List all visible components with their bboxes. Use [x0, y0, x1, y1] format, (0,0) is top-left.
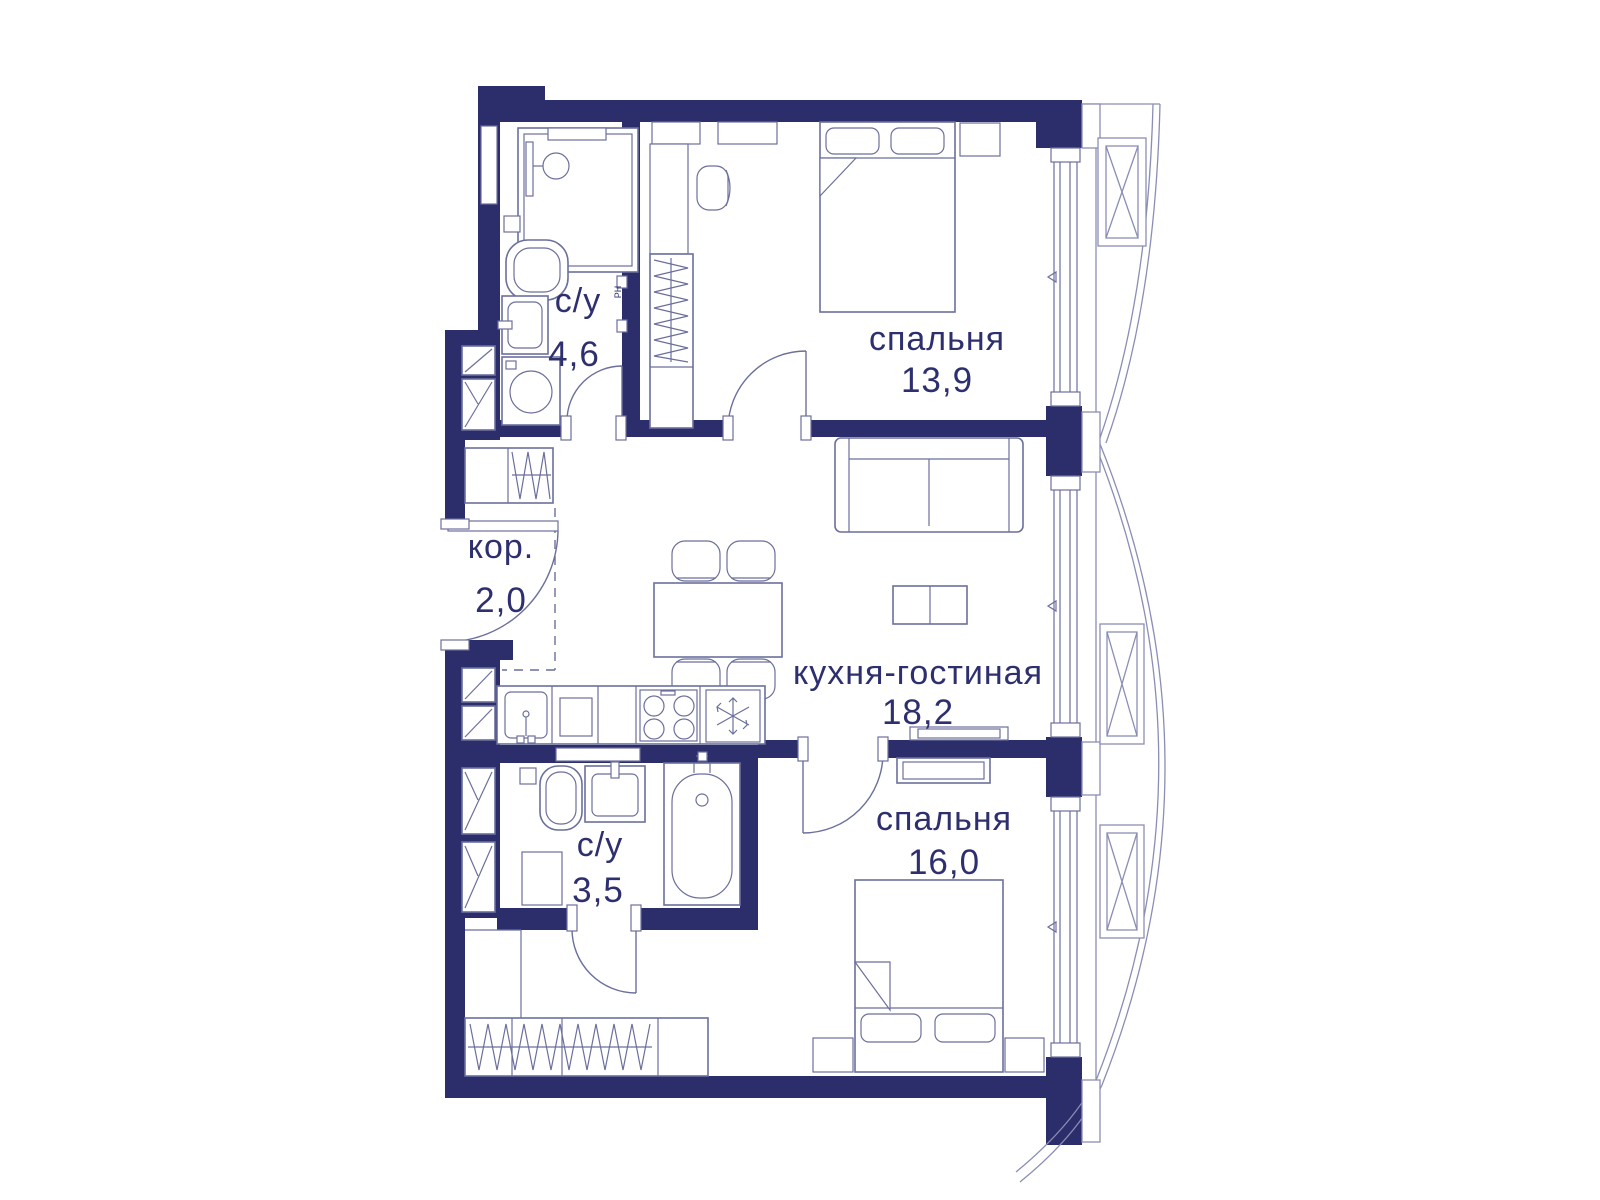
vent-shaft-icon — [462, 346, 495, 430]
window-icon — [1048, 797, 1080, 1057]
bathtub-icon — [664, 752, 740, 905]
wall-bottom — [445, 1076, 1082, 1098]
window-icon — [1048, 476, 1080, 737]
wall-niche — [481, 126, 497, 204]
wall-bathroom2-bottom-right — [636, 908, 758, 930]
facade-curve — [1100, 444, 1165, 1085]
door-bathroom-1 — [561, 366, 626, 440]
cabinet-icon — [560, 698, 592, 736]
nightstand-icon — [960, 123, 1000, 156]
door-bathroom-2 — [567, 905, 641, 993]
wall-top — [478, 100, 1082, 122]
shelf-icon — [652, 122, 700, 144]
wall-right-pier-b — [1046, 737, 1082, 797]
room-label-bedroom-1: спальня — [869, 320, 1005, 358]
wall-living-bedroom2-right — [883, 740, 1046, 758]
room-bathroom-2 — [520, 752, 740, 905]
nightstand-icon — [813, 1038, 853, 1072]
facade-pier-box — [1082, 742, 1100, 795]
chair-icon — [697, 166, 730, 210]
wall-bedroom1-bottom-right — [806, 420, 1046, 437]
room-label-kitchen-living: кухня-гостиная — [793, 654, 1043, 692]
room-area-corridor: 2,0 — [475, 581, 527, 620]
room-label-bedroom-2: спальня — [876, 800, 1012, 838]
bed-icon — [820, 122, 955, 312]
wall-bathroom2-right — [740, 745, 758, 930]
wall-switch-mark-2 — [617, 320, 627, 332]
door-swing — [567, 366, 622, 421]
wall-top-left-stub — [478, 86, 545, 100]
shelf-icon — [522, 852, 562, 905]
room-area-bedroom-2: 16,0 — [908, 843, 980, 882]
kitchen-sink-icon — [505, 692, 547, 743]
door-bedroom-2 — [798, 737, 888, 833]
chair-icon — [727, 541, 775, 581]
door-swing — [728, 351, 806, 429]
sofa-icon — [835, 438, 1023, 532]
facade-curve — [1097, 452, 1159, 1078]
wall-left-mid — [445, 432, 465, 529]
room-area-bathroom-1: 4,6 — [548, 335, 600, 374]
ac-unit-icon — [1100, 624, 1144, 744]
dining-table-icon — [654, 541, 782, 699]
room-area-bathroom-2: 3,5 — [572, 871, 624, 910]
facade-pier-box — [1082, 412, 1100, 472]
ac-unit-icon — [1098, 138, 1146, 246]
room-label-corridor: кор. — [468, 528, 535, 566]
floor-plan-page: с/у 4,6 спальня 13,9 кор. 2,0 кухня-гост… — [0, 0, 1600, 1200]
wall-left-lower — [445, 918, 465, 1078]
kitchen-counter — [497, 686, 765, 744]
facade-pier-box — [1082, 104, 1100, 148]
dresser-icon — [897, 758, 990, 783]
wardrobe-icon — [465, 448, 553, 503]
room-label-bathroom-1: с/у — [555, 282, 601, 320]
sink-icon — [585, 762, 645, 822]
wall-tag-label: РН — [613, 286, 623, 299]
fridge-icon — [706, 690, 760, 742]
wall-bottom-right-block — [1046, 1057, 1082, 1145]
coffee-table-icon — [893, 586, 967, 624]
toilet-icon — [520, 766, 582, 830]
stove-icon — [640, 690, 697, 741]
ac-unit-icon — [1100, 825, 1144, 938]
door-swing — [803, 753, 883, 833]
wardrobe-icon — [465, 1018, 708, 1076]
floor-plan-canvas: с/у 4,6 спальня 13,9 кор. 2,0 кухня-гост… — [0, 0, 1600, 1200]
wardrobe-icon — [650, 254, 693, 428]
door-bedroom-1 — [723, 351, 811, 440]
room-area-kitchen-living: 18,2 — [882, 693, 954, 732]
door-swing — [572, 929, 636, 993]
facade-pier-box — [1082, 1080, 1100, 1142]
facade — [1016, 104, 1165, 1182]
wall-bathroom2-bottom-left — [497, 908, 572, 930]
wall-right-pier-a — [1046, 406, 1082, 476]
sink-icon — [498, 296, 548, 354]
lobby-line — [465, 930, 521, 1018]
wall-top-right-corner — [1036, 100, 1082, 148]
window-icon — [1048, 148, 1080, 406]
desk-icon — [650, 144, 688, 254]
room-area-bedroom-1: 13,9 — [901, 361, 973, 400]
shelf-icon — [718, 122, 777, 144]
chair-icon — [672, 541, 720, 581]
nightstand-icon — [1005, 1038, 1044, 1072]
room-label-bathroom-2: с/у — [577, 826, 623, 864]
bathroom2-wall-cabinet — [556, 748, 640, 761]
bed-icon — [855, 880, 1003, 1072]
